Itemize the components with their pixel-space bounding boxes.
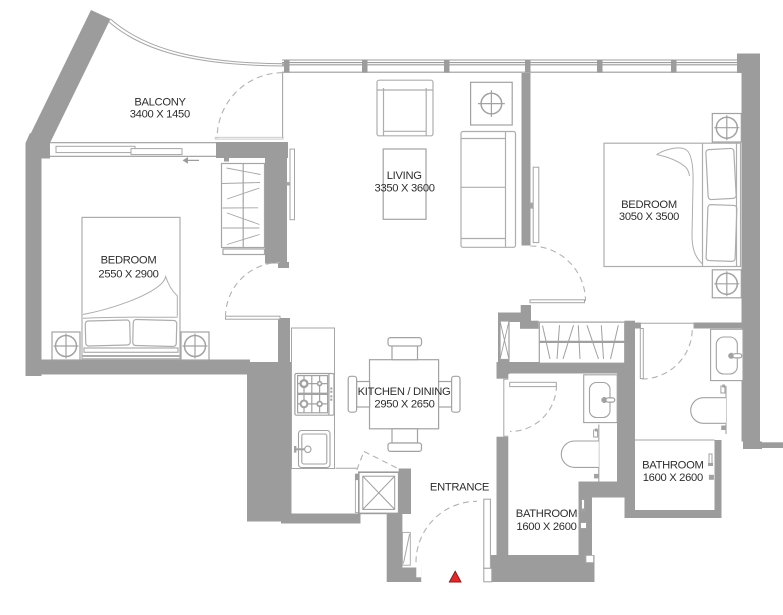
svg-text:BEDROOM: BEDROOM: [101, 255, 157, 267]
svg-text:KITCHEN / DINING: KITCHEN / DINING: [358, 386, 451, 398]
svg-text:BATHROOM: BATHROOM: [516, 508, 577, 520]
svg-text:2950 X 2650: 2950 X 2650: [374, 398, 434, 410]
svg-text:BATHROOM: BATHROOM: [642, 460, 703, 472]
svg-text:3400 X 1450: 3400 X 1450: [130, 109, 190, 121]
svg-text:3350 X 3600: 3350 X 3600: [375, 182, 435, 194]
svg-text:3050 X 3500: 3050 X 3500: [619, 211, 679, 223]
svg-text:1600 X 2600: 1600 X 2600: [643, 472, 703, 484]
svg-text:ENTRANCE: ENTRANCE: [430, 482, 489, 494]
svg-text:BALCONY: BALCONY: [134, 96, 186, 108]
svg-text:1600 X 2600: 1600 X 2600: [516, 521, 576, 533]
svg-text:2550 X 2900: 2550 X 2900: [98, 269, 158, 281]
svg-text:LIVING: LIVING: [387, 170, 422, 182]
svg-text:BEDROOM: BEDROOM: [621, 199, 677, 211]
